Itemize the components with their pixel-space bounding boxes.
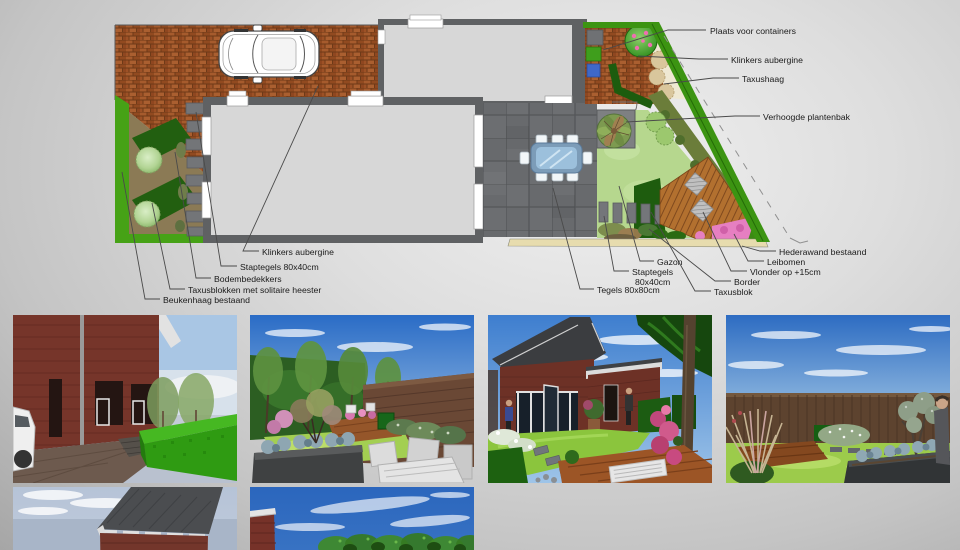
plan-label: Staptegels 80x40cm [240, 262, 319, 272]
hedera-wall [508, 239, 768, 247]
plan-label: Beukenhaag bestaand [163, 295, 250, 305]
design-sheet: Plaats voor containers Klinkers aubergin… [0, 0, 960, 550]
plan-label: Staptegels 80x40cm [632, 267, 673, 287]
render-thumbnail-house-rear [488, 315, 712, 483]
site-plan: Plaats voor containers Klinkers aubergin… [0, 0, 960, 310]
plan-label: Hederawand bestaand [779, 247, 866, 257]
plan-label: Verhoogde plantenbak [763, 112, 850, 122]
plan-label: Tegels 80x80cm [597, 285, 660, 295]
container-gray [587, 30, 603, 45]
plan-label: Leibomen [767, 257, 805, 267]
render-thumbnail-lawn-fence [726, 315, 950, 483]
door-opening [474, 115, 483, 167]
container-green [586, 47, 601, 61]
plan-label: Taxusblok [714, 287, 753, 297]
site-plan-drawing [0, 0, 960, 310]
window-opening [202, 182, 211, 218]
plan-label: Border [734, 277, 760, 287]
silver-shrub [818, 424, 870, 446]
hedge-corner [488, 447, 528, 483]
window-opening [202, 117, 211, 155]
plan-label: Klinkers aubergine [731, 55, 803, 65]
main-house [202, 91, 483, 243]
plan-label: Plaats voor containers [710, 26, 796, 36]
car-top-view [219, 25, 319, 83]
window-opening [227, 96, 248, 106]
render-thumbnail-sky-trees [250, 487, 474, 550]
solitaire-shrub [136, 147, 162, 173]
render-thumbnail-roof-detail [13, 487, 237, 550]
plan-label: Gazon [657, 257, 683, 267]
plan-label: Bodembedekkers [214, 274, 282, 284]
door-opening [474, 184, 483, 229]
plan-label: Taxushaag [742, 74, 784, 84]
outbuilding [378, 15, 584, 105]
brick-pillar [250, 508, 276, 550]
plan-label: Taxusblokken met solitaire heester [188, 285, 321, 295]
window-opening [348, 96, 383, 106]
container-blue [587, 64, 600, 77]
plan-label: Vlonder op +15cm [750, 267, 821, 277]
raised-planter [597, 110, 674, 148]
render-thumbnail-garden-planter [250, 315, 474, 483]
render-thumbnail-front-driveway [13, 315, 237, 483]
plan-label: Klinkers aubergine [262, 247, 334, 257]
